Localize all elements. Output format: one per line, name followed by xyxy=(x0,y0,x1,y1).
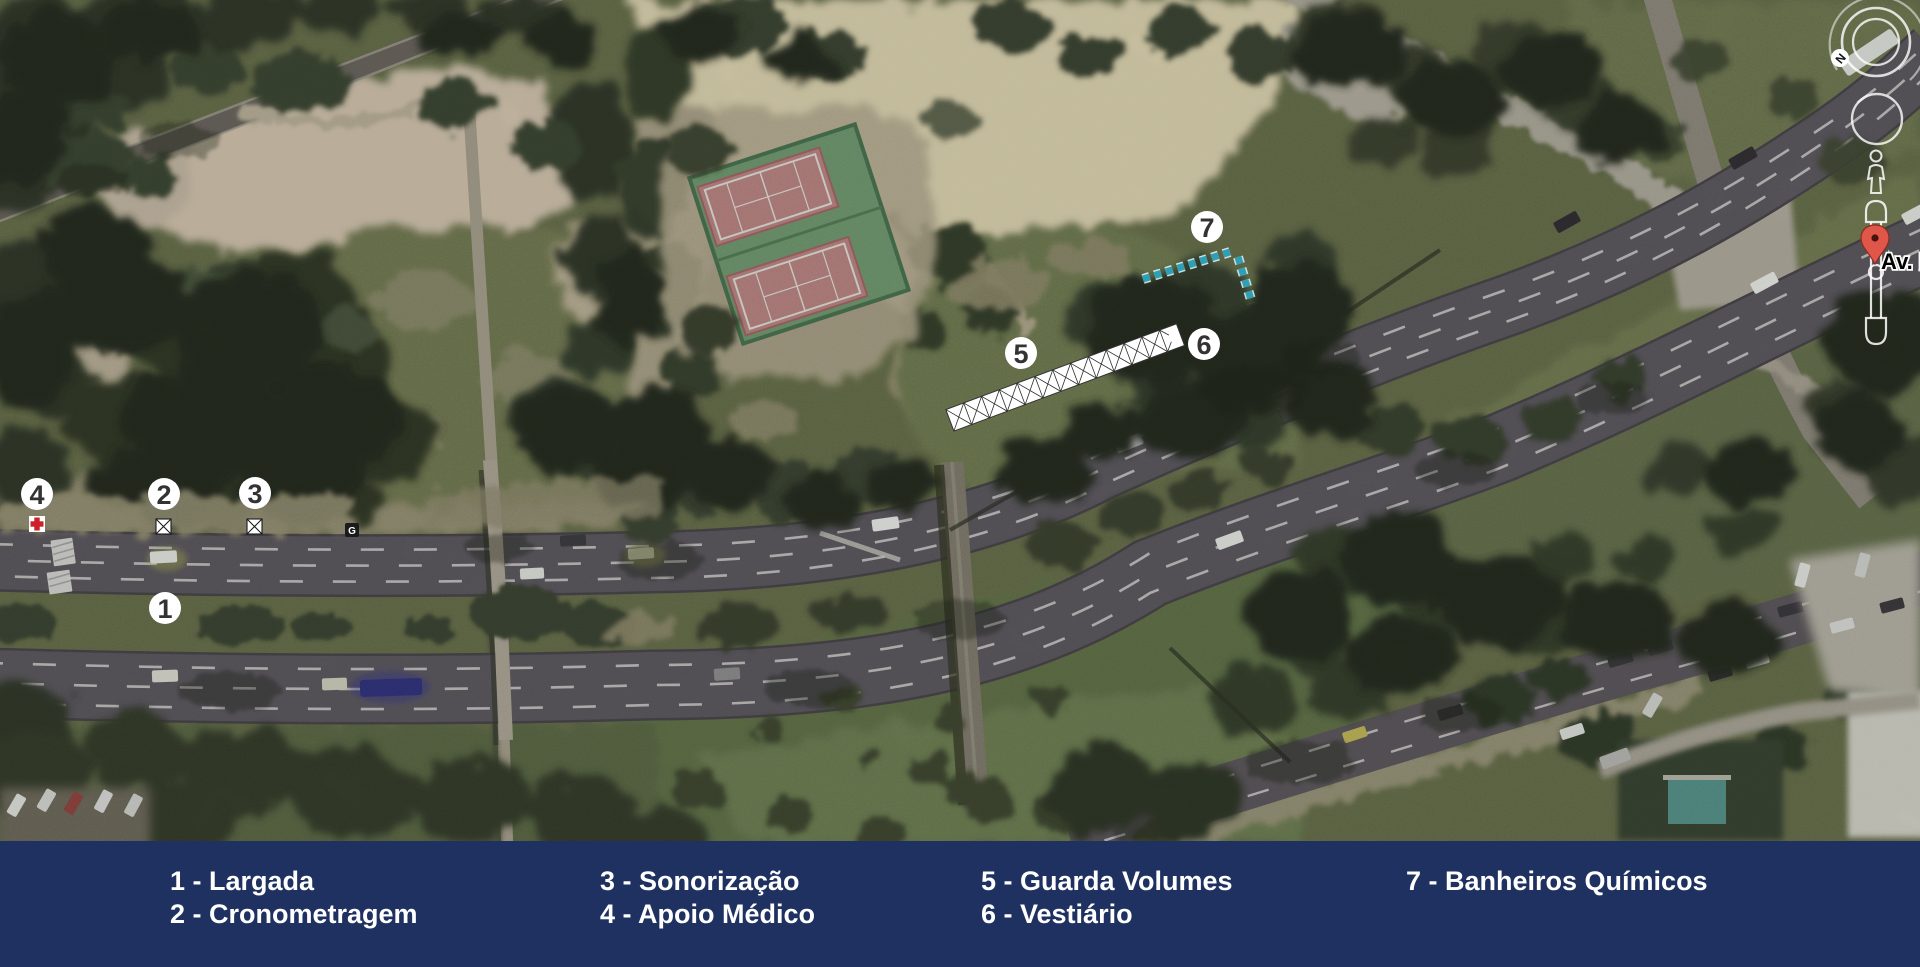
svg-text:3 - Sonorização: 3 - Sonorização xyxy=(600,866,800,896)
svg-text:6: 6 xyxy=(1196,330,1211,360)
svg-text:2: 2 xyxy=(156,480,171,510)
svg-text:Av. In: Av. In xyxy=(1881,249,1920,274)
svg-text:6 - Vestiário: 6 - Vestiário xyxy=(981,899,1133,929)
svg-text:5: 5 xyxy=(1013,339,1028,369)
svg-text:7: 7 xyxy=(1199,213,1214,243)
svg-text:2 - Cronometragem: 2 - Cronometragem xyxy=(170,899,418,929)
svg-text:7 - Banheiros Químicos: 7 - Banheiros Químicos xyxy=(1406,866,1708,896)
svg-text:1: 1 xyxy=(157,594,172,624)
svg-text:1 - Largada: 1 - Largada xyxy=(170,866,315,896)
svg-text:5 - Guarda Volumes: 5 - Guarda Volumes xyxy=(981,866,1233,896)
svg-text:4: 4 xyxy=(29,480,44,510)
svg-text:3: 3 xyxy=(247,479,262,509)
svg-text:4 - Apoio Médico: 4 - Apoio Médico xyxy=(600,899,815,929)
svg-text:G: G xyxy=(348,526,356,537)
